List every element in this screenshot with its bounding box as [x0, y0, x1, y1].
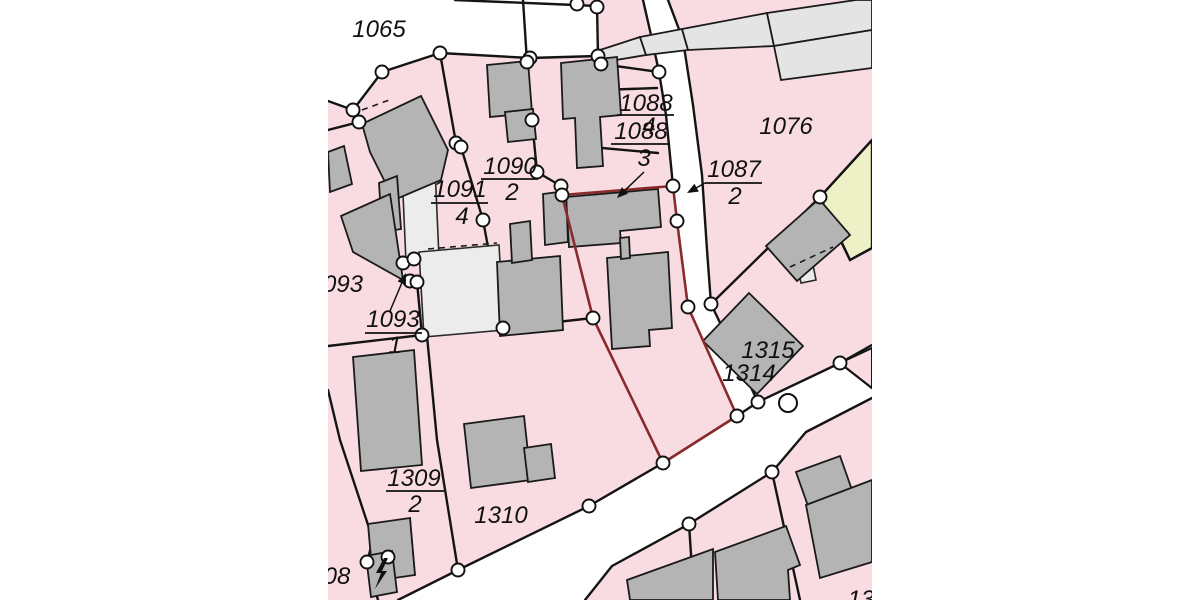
parcel-label: 08	[324, 563, 351, 590]
cadastral-map-canvas[interactable]: 1065108841088310761087210902109140931093…	[0, 0, 1200, 600]
boundary-vertex-marker	[411, 276, 424, 289]
building	[620, 237, 630, 259]
parcel-label: 1065	[352, 16, 406, 43]
parcel-label: 1	[388, 332, 401, 359]
parcel-label: 1087	[707, 156, 762, 183]
boundary-vertex-marker	[361, 556, 374, 569]
boundary-vertex-marker	[583, 500, 596, 513]
parcel-label: 1090	[483, 153, 537, 180]
boundary-vertex-marker	[376, 66, 389, 79]
parcel-label: 1076	[759, 113, 813, 140]
boundary-vertex-marker	[705, 298, 718, 311]
boundary-vertex-marker	[434, 47, 447, 60]
parcel-label: 1310	[474, 502, 528, 529]
cadastral-map-page: 1065108841088310761087210902109140931093…	[0, 0, 1200, 600]
boundary-vertex-marker	[671, 215, 684, 228]
boundary-vertex-marker	[556, 189, 569, 202]
boundary-vertex-marker	[595, 58, 608, 71]
parcel-label: 1088	[614, 118, 668, 145]
parcel-label: 1091	[433, 176, 486, 203]
boundary-vertex-marker	[653, 66, 666, 79]
boundary-vertex-marker	[834, 357, 847, 370]
boundary-vertex-marker	[521, 56, 534, 69]
boundary-vertex-marker	[526, 114, 539, 127]
building	[353, 350, 422, 471]
parcel-label: 1309	[387, 465, 440, 492]
parcel-label: 3	[637, 145, 651, 172]
survey-point-circle	[779, 394, 797, 412]
boundary-vertex-marker	[657, 457, 670, 470]
building	[464, 416, 531, 488]
parcel-label: 2	[504, 179, 518, 206]
boundary-vertex-marker	[353, 116, 366, 129]
boundary-vertex-marker	[766, 466, 779, 479]
boundary-vertex-marker	[591, 1, 604, 14]
boundary-vertex-marker	[683, 518, 696, 531]
boundary-vertex-marker	[587, 312, 600, 325]
boundary-vertex-marker	[571, 0, 584, 11]
boundary-vertex-marker	[752, 396, 765, 409]
parcel-label: 13	[848, 586, 875, 600]
courtyard-area	[419, 245, 504, 337]
boundary-vertex-marker	[682, 301, 695, 314]
boundary-vertex-marker	[667, 180, 680, 193]
boundary-vertex-marker	[814, 191, 827, 204]
building	[487, 61, 532, 117]
building	[524, 444, 555, 482]
boundary-vertex-marker	[497, 322, 510, 335]
boundary-vertex-marker	[477, 214, 490, 227]
boundary-vertex-marker	[731, 410, 744, 423]
boundary-vertex-marker	[347, 104, 360, 117]
parcel-label: 093	[323, 271, 364, 298]
parcel-label: 1093	[366, 306, 420, 333]
boundary-vertex-marker	[455, 141, 468, 154]
boundary-vertex-marker	[408, 253, 421, 266]
map-layers: 1065108841088310761087210902109140931093…	[323, 0, 875, 600]
parcel-label: 2	[727, 183, 741, 210]
parcel-label: 1314	[722, 360, 775, 387]
parcel-label: 2	[407, 491, 421, 518]
boundary-vertex-marker	[452, 564, 465, 577]
building	[510, 221, 532, 263]
parcel-label: 4	[455, 203, 468, 230]
